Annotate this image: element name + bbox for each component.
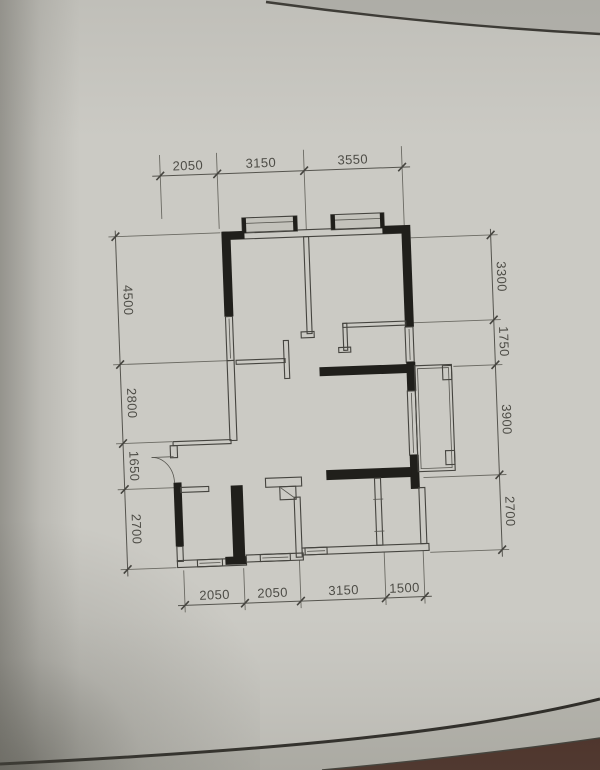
entry-door bbox=[152, 457, 175, 484]
window-right-upper-glass-line bbox=[409, 329, 410, 360]
dim-label-top-1: 2050 bbox=[172, 157, 203, 173]
entry-door-arc bbox=[152, 457, 175, 484]
wall-segment bbox=[294, 497, 302, 557]
wall-segment bbox=[231, 485, 246, 558]
dim-label-bottom-3: 3150 bbox=[328, 582, 359, 598]
kitchen-sink-diagonal bbox=[281, 487, 295, 499]
wall-segment bbox=[293, 216, 298, 231]
dim-label-right-1: 3300 bbox=[494, 261, 510, 292]
wall-segment bbox=[181, 486, 209, 492]
wall-segment bbox=[173, 440, 231, 446]
right-extension-lines bbox=[409, 235, 509, 553]
wall-segment bbox=[227, 360, 237, 440]
window-left-glass-line bbox=[229, 319, 230, 359]
balcony-inner-rail bbox=[417, 368, 452, 469]
walls bbox=[143, 211, 459, 569]
dim-label-right-2: 1750 bbox=[496, 326, 512, 357]
dim-label-right-4: 2700 bbox=[502, 496, 518, 527]
wall-segment bbox=[170, 446, 177, 458]
dim-label-left-1: 4500 bbox=[120, 285, 136, 316]
living-room-north-wall bbox=[319, 364, 407, 376]
balcony bbox=[414, 364, 455, 471]
dim-label-left-3: 1650 bbox=[126, 451, 142, 482]
bay-window-2-fill bbox=[332, 214, 383, 229]
balcony-pad-bottom bbox=[446, 450, 456, 464]
living-room-south-wall bbox=[326, 467, 411, 480]
dim-label-top-3: 3550 bbox=[337, 151, 368, 167]
bay-window-1-fill bbox=[243, 217, 296, 232]
window-right-lower-glass-line bbox=[411, 393, 413, 453]
bedroom-divider-wall bbox=[304, 237, 313, 334]
wall-segment bbox=[242, 218, 247, 233]
dim-label-top-2: 3150 bbox=[245, 155, 276, 171]
extension-lines bbox=[106, 143, 512, 615]
dim-label-bottom-1: 2050 bbox=[199, 587, 230, 603]
dim-label-right-3: 3900 bbox=[499, 404, 515, 435]
photo-of-floor-plan: 2050 3150 3550 4500 2800 1650 2700 3300 … bbox=[0, 0, 600, 770]
wall-segment bbox=[331, 215, 336, 230]
dim-label-bottom-4: 1500 bbox=[389, 580, 420, 596]
wall-segment bbox=[283, 340, 289, 378]
kitchen-counter bbox=[265, 477, 301, 487]
wall-segment bbox=[236, 359, 285, 365]
dim-label-left-2: 2800 bbox=[124, 388, 140, 419]
wall-segment bbox=[221, 231, 233, 316]
wall-segment bbox=[374, 478, 382, 545]
wall-segment bbox=[343, 321, 406, 327]
dim-label-bottom-2: 2050 bbox=[257, 585, 288, 601]
wall-segment bbox=[302, 543, 429, 555]
window-dining-bottom-glass-line bbox=[307, 551, 325, 552]
wall-segment bbox=[177, 546, 184, 561]
wall-segment bbox=[419, 487, 427, 543]
window-bath-bottom-glass-line bbox=[199, 563, 220, 564]
wall-segment bbox=[401, 232, 413, 327]
wall-segment bbox=[380, 213, 385, 228]
dimension-lines bbox=[109, 160, 508, 612]
dim-label-left-4: 2700 bbox=[129, 514, 145, 545]
wall-segment bbox=[225, 556, 246, 565]
floor-plan-drawing: 2050 3150 3550 4500 2800 1650 2700 3300 … bbox=[0, 0, 600, 770]
window-kitchen-bottom-glass-line bbox=[262, 557, 288, 558]
